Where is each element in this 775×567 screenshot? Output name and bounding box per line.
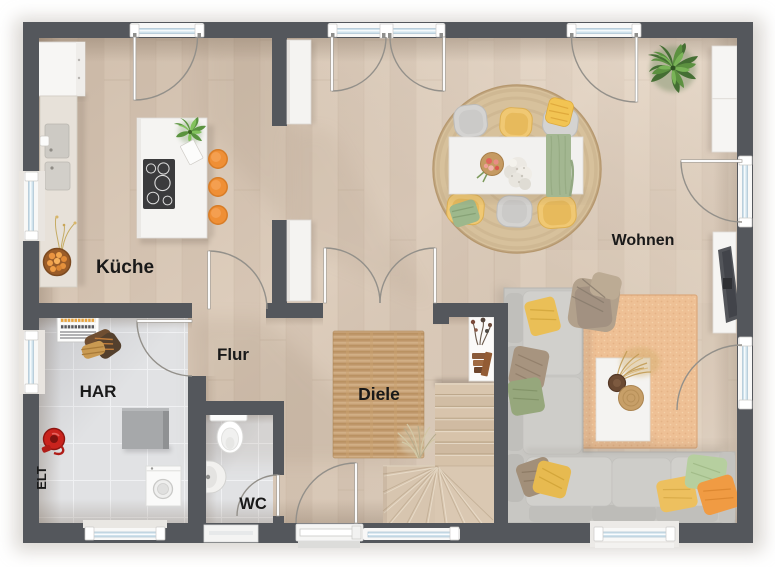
svg-text:Wohnen: Wohnen — [612, 232, 675, 249]
svg-text:ELT: ELT — [34, 466, 49, 490]
svg-text:HAR: HAR — [80, 382, 117, 401]
svg-text:Diele: Diele — [358, 384, 400, 404]
svg-text:Flur: Flur — [217, 345, 249, 364]
svg-text:WC: WC — [239, 495, 267, 513]
svg-text:Küche: Küche — [96, 257, 154, 278]
